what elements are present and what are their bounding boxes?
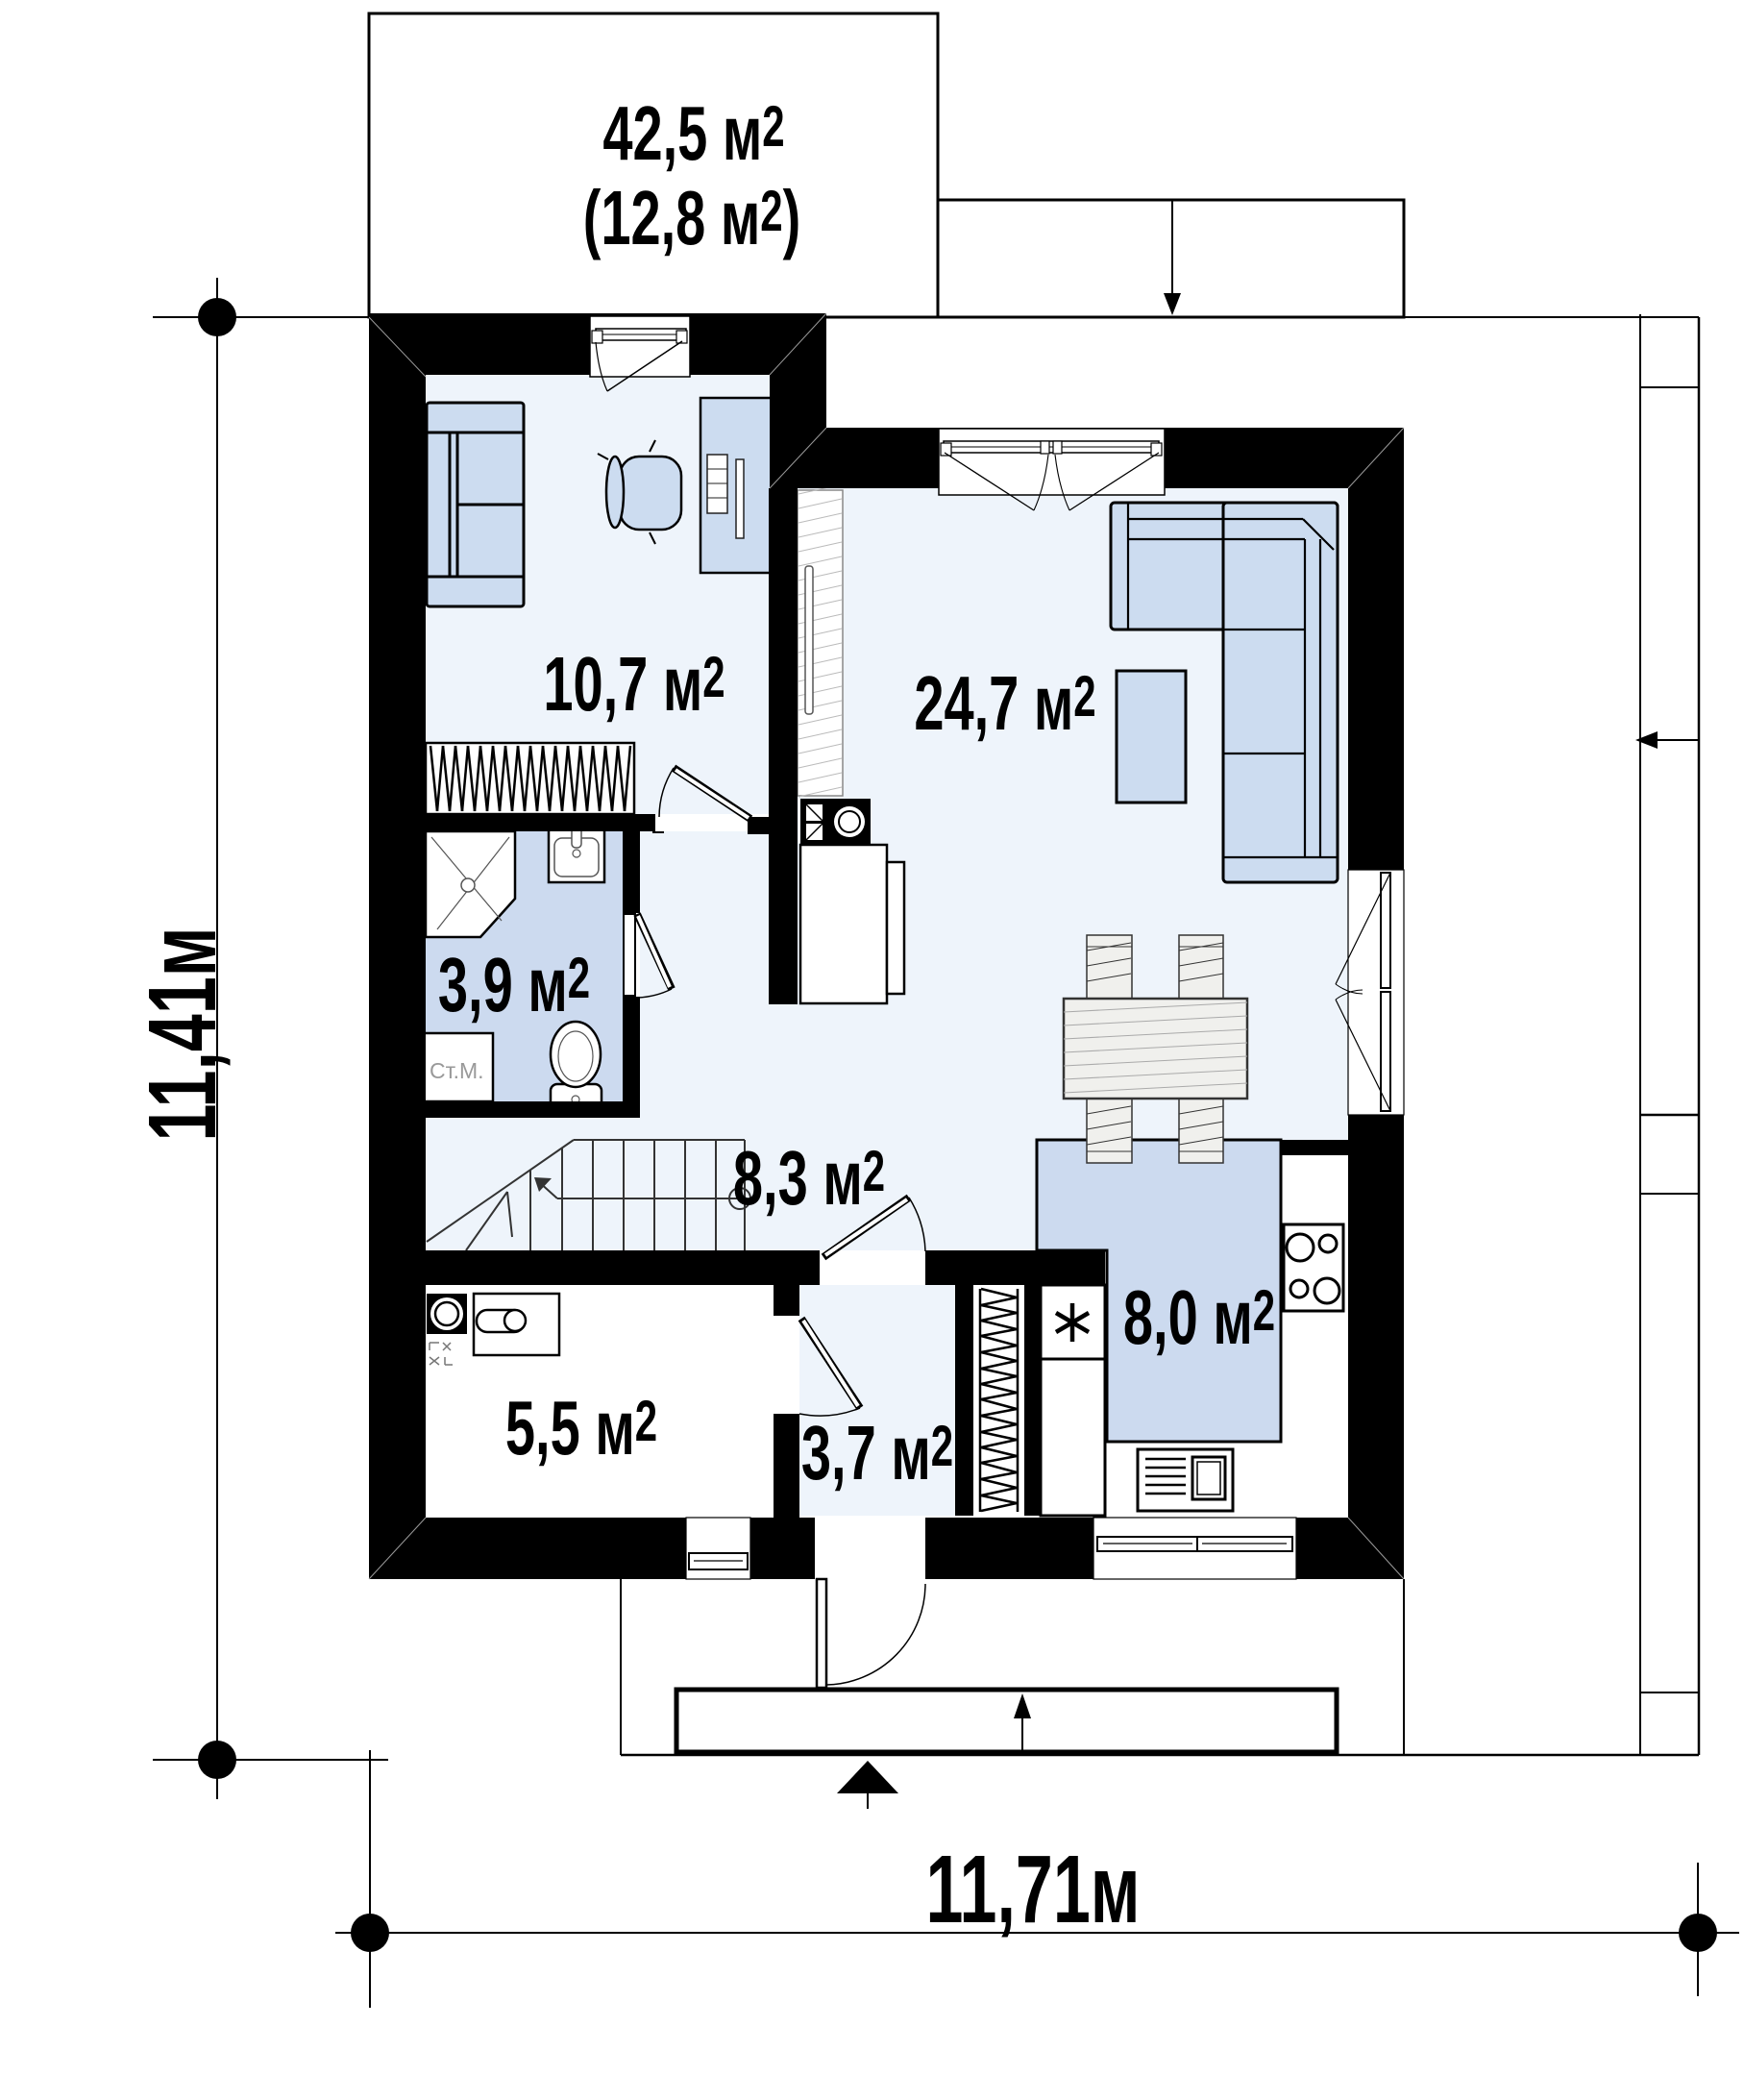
svg-text:42,5 м2: 42,5 м2: [602, 89, 784, 176]
svg-text:3,7 м2: 3,7 м2: [801, 1409, 953, 1495]
svg-text:8,3 м2: 8,3 м2: [733, 1134, 885, 1221]
svg-text:5,5 м2: 5,5 м2: [505, 1384, 657, 1470]
svg-text:24,7 м2: 24,7 м2: [914, 659, 1095, 746]
svg-text:10,7 м2: 10,7 м2: [543, 640, 725, 727]
svg-text:11,71м: 11,71м: [925, 1837, 1140, 1943]
svg-text:3,9 м2: 3,9 м2: [438, 941, 590, 1027]
svg-text:Ст.М.: Ст.М.: [430, 1058, 484, 1083]
svg-text:8,0 м2: 8,0 м2: [1123, 1273, 1275, 1360]
svg-text:11,41м: 11,41м: [130, 926, 236, 1141]
